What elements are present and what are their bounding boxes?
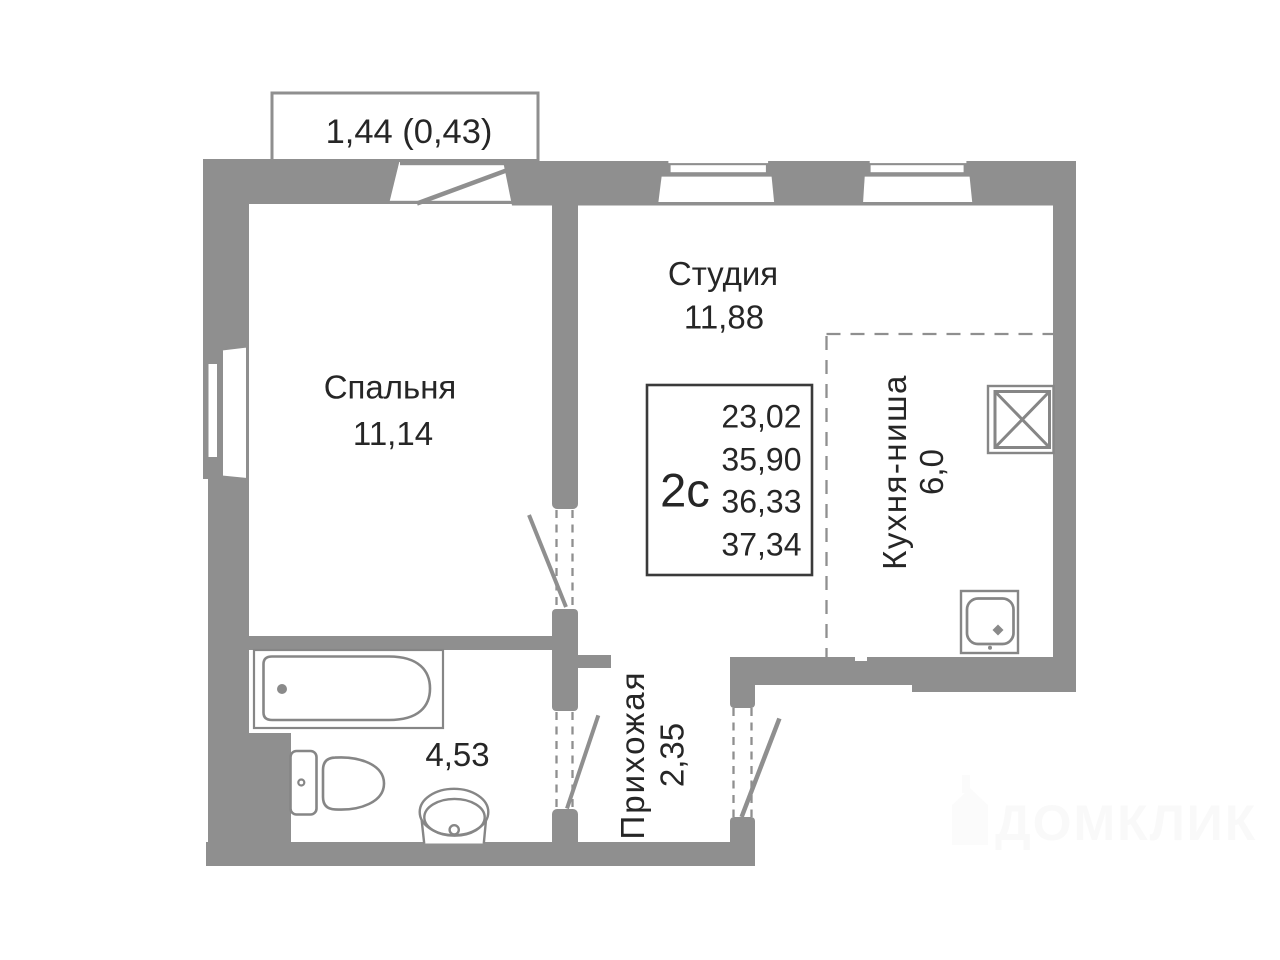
- svg-text:11,88: 11,88: [684, 299, 764, 336]
- svg-text:23,02: 23,02: [721, 399, 801, 435]
- svg-text:1,44 (0,43): 1,44 (0,43): [326, 113, 493, 151]
- svg-text:35,90: 35,90: [721, 442, 801, 478]
- svg-text:4,53: 4,53: [425, 736, 489, 773]
- svg-text:ДОМКЛИК: ДОМКЛИК: [995, 795, 1257, 851]
- svg-text:36,33: 36,33: [721, 484, 801, 520]
- svg-text:Студия: Студия: [668, 255, 778, 292]
- svg-text:Спальня: Спальня: [324, 369, 457, 406]
- svg-text:37,34: 37,34: [721, 527, 801, 563]
- svg-text:2с: 2с: [660, 464, 710, 517]
- svg-text:11,14: 11,14: [353, 415, 433, 452]
